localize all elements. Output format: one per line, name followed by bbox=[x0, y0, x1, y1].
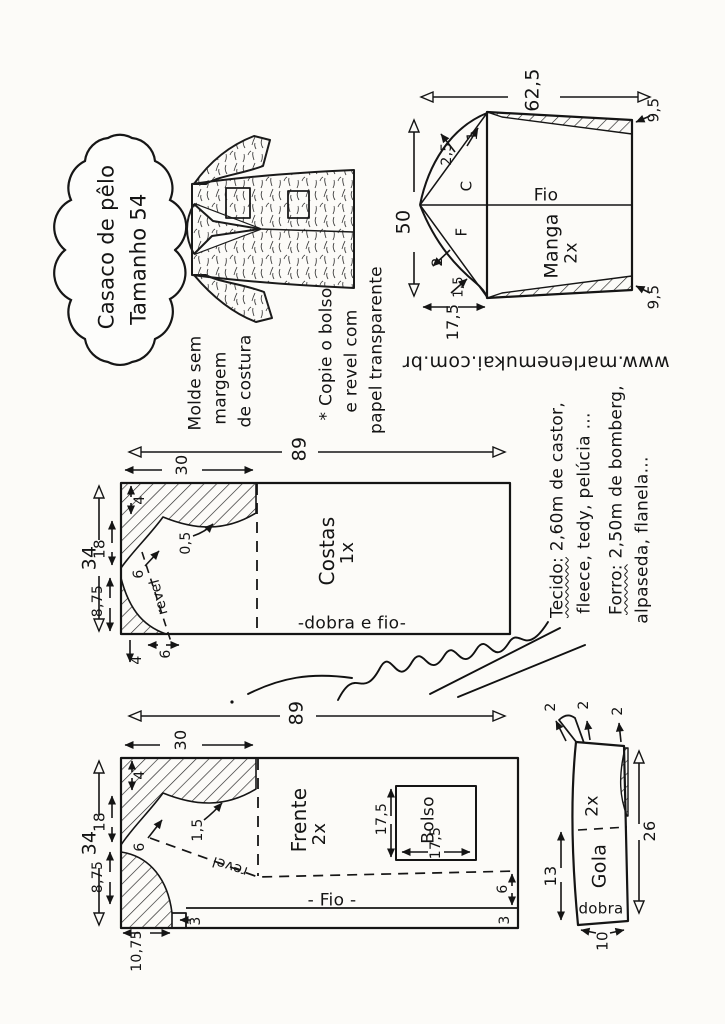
frente-width-label: 89 bbox=[288, 701, 307, 726]
frente-grain-label: - Fio - bbox=[308, 893, 357, 910]
frente-height-label: 34 bbox=[81, 831, 100, 856]
frente-notch-label: 6 bbox=[133, 842, 147, 851]
costas-notch-label: 6 bbox=[132, 569, 146, 578]
manga-cap-back-top: 1 bbox=[466, 131, 480, 140]
fabric-tecido-rest: 2,60m de castor, bbox=[548, 402, 568, 557]
sewing-pattern-scan: Casaco de pêlo Tamanho 54 Molde sem marg… bbox=[0, 0, 725, 1024]
costas-drop-label: 4 bbox=[133, 495, 147, 504]
gola-tip-a-label: 2 bbox=[544, 702, 558, 711]
website-url: www.marlenemukai.com.br bbox=[402, 353, 669, 372]
title-line1: Casaco de pêlo bbox=[97, 165, 118, 329]
gola-length-label: 26 bbox=[642, 821, 658, 842]
fabric-line1: Tecido: 2,60m de castor, bbox=[550, 402, 567, 618]
frente-ext-label: 3 bbox=[189, 916, 203, 925]
costas-shoulder-label: 30 bbox=[174, 455, 190, 476]
manga-qty-label: 2x bbox=[564, 242, 581, 263]
note-molde-line1: Molde sem bbox=[188, 335, 205, 430]
manga-height-label: 50 bbox=[395, 210, 414, 235]
fabric-forro-rest: 2,50m de bomberg, bbox=[607, 385, 627, 564]
costas-fold-label: -dobra e fio- bbox=[298, 616, 406, 633]
gola-width-label: 10 bbox=[596, 931, 611, 951]
bolso-width-label: 17,5 bbox=[429, 827, 443, 859]
frente-name-label: Frente bbox=[289, 788, 309, 853]
note-copie-line2: e revel com bbox=[344, 309, 361, 412]
gola-qty-label: 2x bbox=[585, 795, 602, 816]
costas-qty-label: 1x bbox=[339, 542, 357, 565]
frente-qty-label: 2x bbox=[311, 823, 329, 846]
fabric-line3: Forro: 2,50m de bomberg, bbox=[609, 385, 626, 615]
manga-grain-label: Fio bbox=[534, 188, 559, 205]
frente-hem-label: 3 bbox=[498, 915, 512, 924]
costas-name-label: Costas bbox=[317, 517, 337, 586]
manga-hem-bottom-label: 9,5 bbox=[647, 285, 662, 310]
costas-hem-in-label: 6 bbox=[159, 649, 173, 658]
frente-drop-label: 4 bbox=[133, 770, 147, 779]
manga-piece bbox=[414, 97, 650, 307]
note-molde-line2: margem bbox=[213, 351, 230, 424]
costas-curve-label: 0,5 bbox=[179, 531, 193, 554]
gola-half-label: 13 bbox=[543, 866, 559, 887]
note-molde-line3: de costura bbox=[238, 334, 255, 427]
note-copie-line1: * Copie o bolso bbox=[319, 287, 336, 420]
frente-front-edge-label: 10,75 bbox=[130, 930, 144, 972]
frente-shoulder-label: 30 bbox=[173, 730, 189, 751]
manga-cap-back-notch: 2,5 bbox=[440, 142, 454, 165]
manga-underarm-label: 17,5 bbox=[445, 304, 461, 341]
gola-name-label: Gola bbox=[591, 844, 610, 888]
manga-hem-top-label: 9,5 bbox=[647, 98, 662, 123]
gola-tip-b-label: 2 bbox=[577, 700, 591, 709]
manga-front-letter: F bbox=[455, 228, 470, 237]
costas-armhole-label: 18 bbox=[93, 539, 108, 559]
manga-width-label: 62,5 bbox=[524, 68, 543, 112]
manga-cap-front-base: 1,5 bbox=[453, 276, 466, 298]
bolso-height-label: 17,5 bbox=[375, 803, 389, 835]
manga-cap-front-notch: 2 bbox=[431, 257, 445, 266]
fabric-forro-head: Forro: bbox=[607, 564, 627, 615]
fabric-line2: fleece, tedy, pelúcia ... bbox=[577, 412, 594, 613]
note-copie-line3: papel transparente bbox=[369, 266, 386, 434]
costas-width-label: 89 bbox=[291, 437, 310, 462]
fabric-tecido-head: Tecido: bbox=[548, 557, 568, 618]
gola-fold-label: dobra bbox=[578, 902, 623, 917]
frente-hip-label: 8,75 bbox=[91, 861, 105, 893]
costas-hem-drop-label: 4 bbox=[130, 655, 144, 664]
title-cloud bbox=[54, 135, 186, 365]
fabric-line4: alpaseda, flanela... bbox=[635, 456, 652, 623]
manga-back-letter: C bbox=[460, 181, 475, 192]
frente-hem-gap-label: 6 bbox=[496, 884, 510, 893]
frente-armhole-label: 18 bbox=[93, 812, 108, 832]
title-line2: Tamanho 54 bbox=[129, 193, 150, 324]
costas-hip-label: 8,75 bbox=[91, 585, 105, 617]
gola-tip-c-label: 2 bbox=[611, 706, 625, 715]
manga-name-label: Manga bbox=[543, 213, 562, 278]
frente-curve-label: 1,5 bbox=[191, 818, 205, 841]
